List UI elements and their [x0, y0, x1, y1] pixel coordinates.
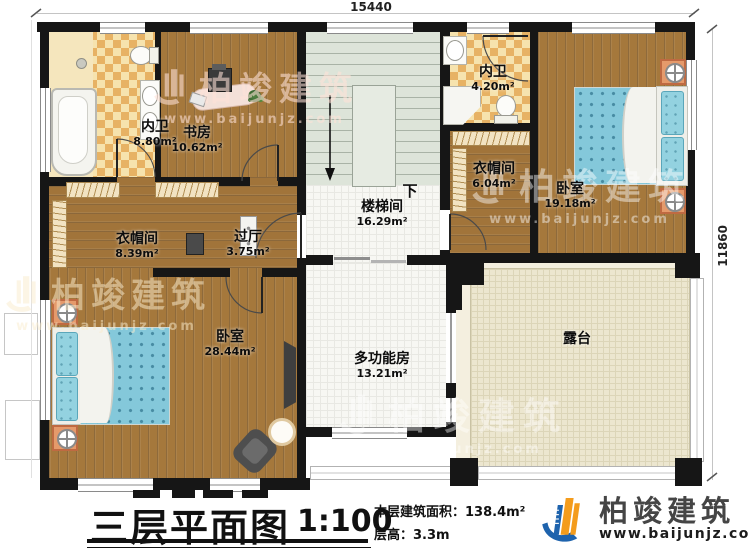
terrace-pillar	[675, 253, 700, 278]
room-area: 13.21m²	[354, 368, 410, 380]
wall	[306, 427, 332, 437]
lamp-icon	[665, 63, 685, 83]
study-floor	[158, 32, 297, 186]
room-area: 8.39m²	[115, 248, 158, 260]
window	[40, 88, 51, 172]
room-label-bath1: 内卫 8.80m²	[133, 120, 176, 148]
room-label-study: 书房 10.62m²	[171, 126, 222, 154]
wall	[306, 255, 333, 265]
room-name: 书房	[171, 126, 222, 142]
page-title: 三层平面图	[90, 497, 290, 552]
sink	[142, 86, 158, 106]
watermark-logo-icon	[2, 272, 44, 314]
toilet	[496, 95, 516, 117]
room-area: 19.18m²	[544, 198, 595, 210]
room-label-stairhall: 楼梯间 16.29m²	[356, 200, 407, 228]
closet-rack	[452, 131, 530, 146]
wall	[40, 478, 78, 490]
wall	[260, 478, 310, 490]
terrace-floor	[470, 268, 690, 474]
wall	[407, 427, 456, 437]
room-label-multi: 多功能房 13.21m²	[354, 352, 410, 380]
stair-landing	[352, 85, 396, 187]
room-name: 露台	[563, 332, 591, 348]
wall	[686, 22, 695, 60]
room-name: 过厅	[226, 230, 269, 246]
wall	[530, 32, 538, 253]
down-text: 下	[402, 183, 417, 200]
room-area: 8.80m²	[133, 136, 176, 148]
room-label-bath2: 内卫 4.20m²	[471, 65, 514, 93]
dimension-top-value: 15440	[341, 0, 401, 14]
bed-pillow	[661, 91, 684, 135]
wall	[40, 22, 49, 88]
exterior-ledge-2	[5, 400, 40, 460]
company-url: www.baijunjz.com	[599, 527, 750, 542]
closet-rack	[52, 200, 67, 268]
room-name: 楼梯间	[356, 200, 407, 216]
glass-door	[450, 313, 452, 383]
plant-icon	[248, 90, 261, 102]
wall	[509, 22, 572, 32]
bed-pillow	[56, 377, 78, 421]
sink	[446, 40, 464, 61]
bed-blanket	[622, 87, 660, 183]
terrace-pillar	[450, 458, 478, 486]
company-name: 柏竣建筑	[599, 496, 750, 526]
room-label-bedroom1: 卧室 28.44m²	[204, 330, 255, 358]
company-logo: 柏竣建筑 www.baijunjz.com	[537, 491, 750, 547]
wall	[297, 22, 306, 215]
closet-rack	[452, 148, 467, 212]
sliding-door	[371, 260, 406, 263]
walkway-edge	[310, 466, 452, 480]
bed-blanket	[80, 327, 114, 423]
bed-pillow	[661, 137, 684, 181]
room-area: 4.20m²	[471, 81, 514, 93]
title-underline-thin	[87, 547, 371, 548]
room-label-closet2: 衣帽间 6.04m²	[472, 162, 515, 190]
computer-top	[212, 64, 226, 70]
window	[327, 22, 413, 34]
terrace-railing-bottom	[478, 466, 677, 480]
wall	[297, 268, 306, 478]
room-name: 衣帽间	[472, 162, 515, 178]
window	[467, 22, 509, 34]
stairs-down-label: 下	[402, 183, 417, 200]
dresser	[186, 233, 204, 255]
window	[332, 427, 407, 439]
room-area: 3.75m²	[226, 246, 269, 258]
window	[40, 300, 51, 420]
closet-rack	[155, 182, 219, 198]
toilet-tank	[494, 115, 518, 124]
window	[572, 22, 655, 34]
wall-corner	[446, 253, 462, 310]
glass-door	[450, 398, 452, 422]
lamp-icon	[665, 192, 685, 212]
wall	[153, 268, 230, 277]
window	[100, 22, 145, 34]
toilet-tank	[149, 47, 159, 64]
title-underline-thick	[87, 539, 368, 543]
lamp-icon	[57, 303, 77, 323]
room-name: 多功能房	[354, 352, 410, 368]
floor-plan-page: 15440 11860 柏竣建筑 www.baijunjz.com 柏竣建筑 w…	[0, 0, 750, 559]
wall	[40, 172, 49, 300]
lamp-icon	[57, 429, 77, 449]
bed-pillow	[56, 332, 78, 376]
exterior-ledge-1	[4, 313, 38, 355]
company-logo-icon	[537, 491, 593, 547]
tv-icon	[284, 341, 296, 409]
dimension-right-value: 11860	[716, 225, 730, 267]
sliding-door	[334, 257, 370, 260]
room-area: 6.04m²	[472, 178, 515, 190]
window	[190, 22, 268, 34]
title-height-text: 层高：3.3m	[374, 524, 450, 543]
room-name: 卧室	[544, 182, 595, 198]
outline-line-left	[31, 20, 32, 478]
room-name: 衣帽间	[115, 232, 158, 248]
floor-lamp-icon	[268, 418, 296, 446]
wall	[153, 478, 210, 490]
multi-room-floor	[306, 263, 446, 437]
bathtub-basin	[58, 96, 88, 164]
wall	[440, 131, 450, 210]
title-area-text: 本层建筑面积：138.4m²	[374, 501, 525, 520]
wall	[297, 258, 306, 268]
room-label-terrace: 露台	[563, 332, 591, 348]
dimension-line-right	[712, 28, 713, 480]
room-name: 内卫	[471, 65, 514, 81]
room-label-hall: 过厅 3.75m²	[226, 230, 269, 258]
closet-rack	[66, 182, 120, 198]
room-label-closet1: 衣帽间 8.39m²	[115, 232, 158, 260]
wall	[145, 22, 190, 32]
terrace-railing-right	[690, 278, 704, 462]
room-area: 16.29m²	[356, 216, 407, 228]
shower-head-icon	[76, 58, 87, 69]
room-name: 卧室	[204, 330, 255, 346]
terrace-pillar	[675, 458, 702, 486]
computer-icon	[208, 68, 232, 92]
wall	[446, 383, 456, 398]
room-label-bedroom2: 卧室 19.18m²	[544, 182, 595, 210]
room-area: 10.62m²	[171, 142, 222, 154]
room-area: 28.44m²	[204, 346, 255, 358]
room-name: 内卫	[133, 120, 176, 136]
